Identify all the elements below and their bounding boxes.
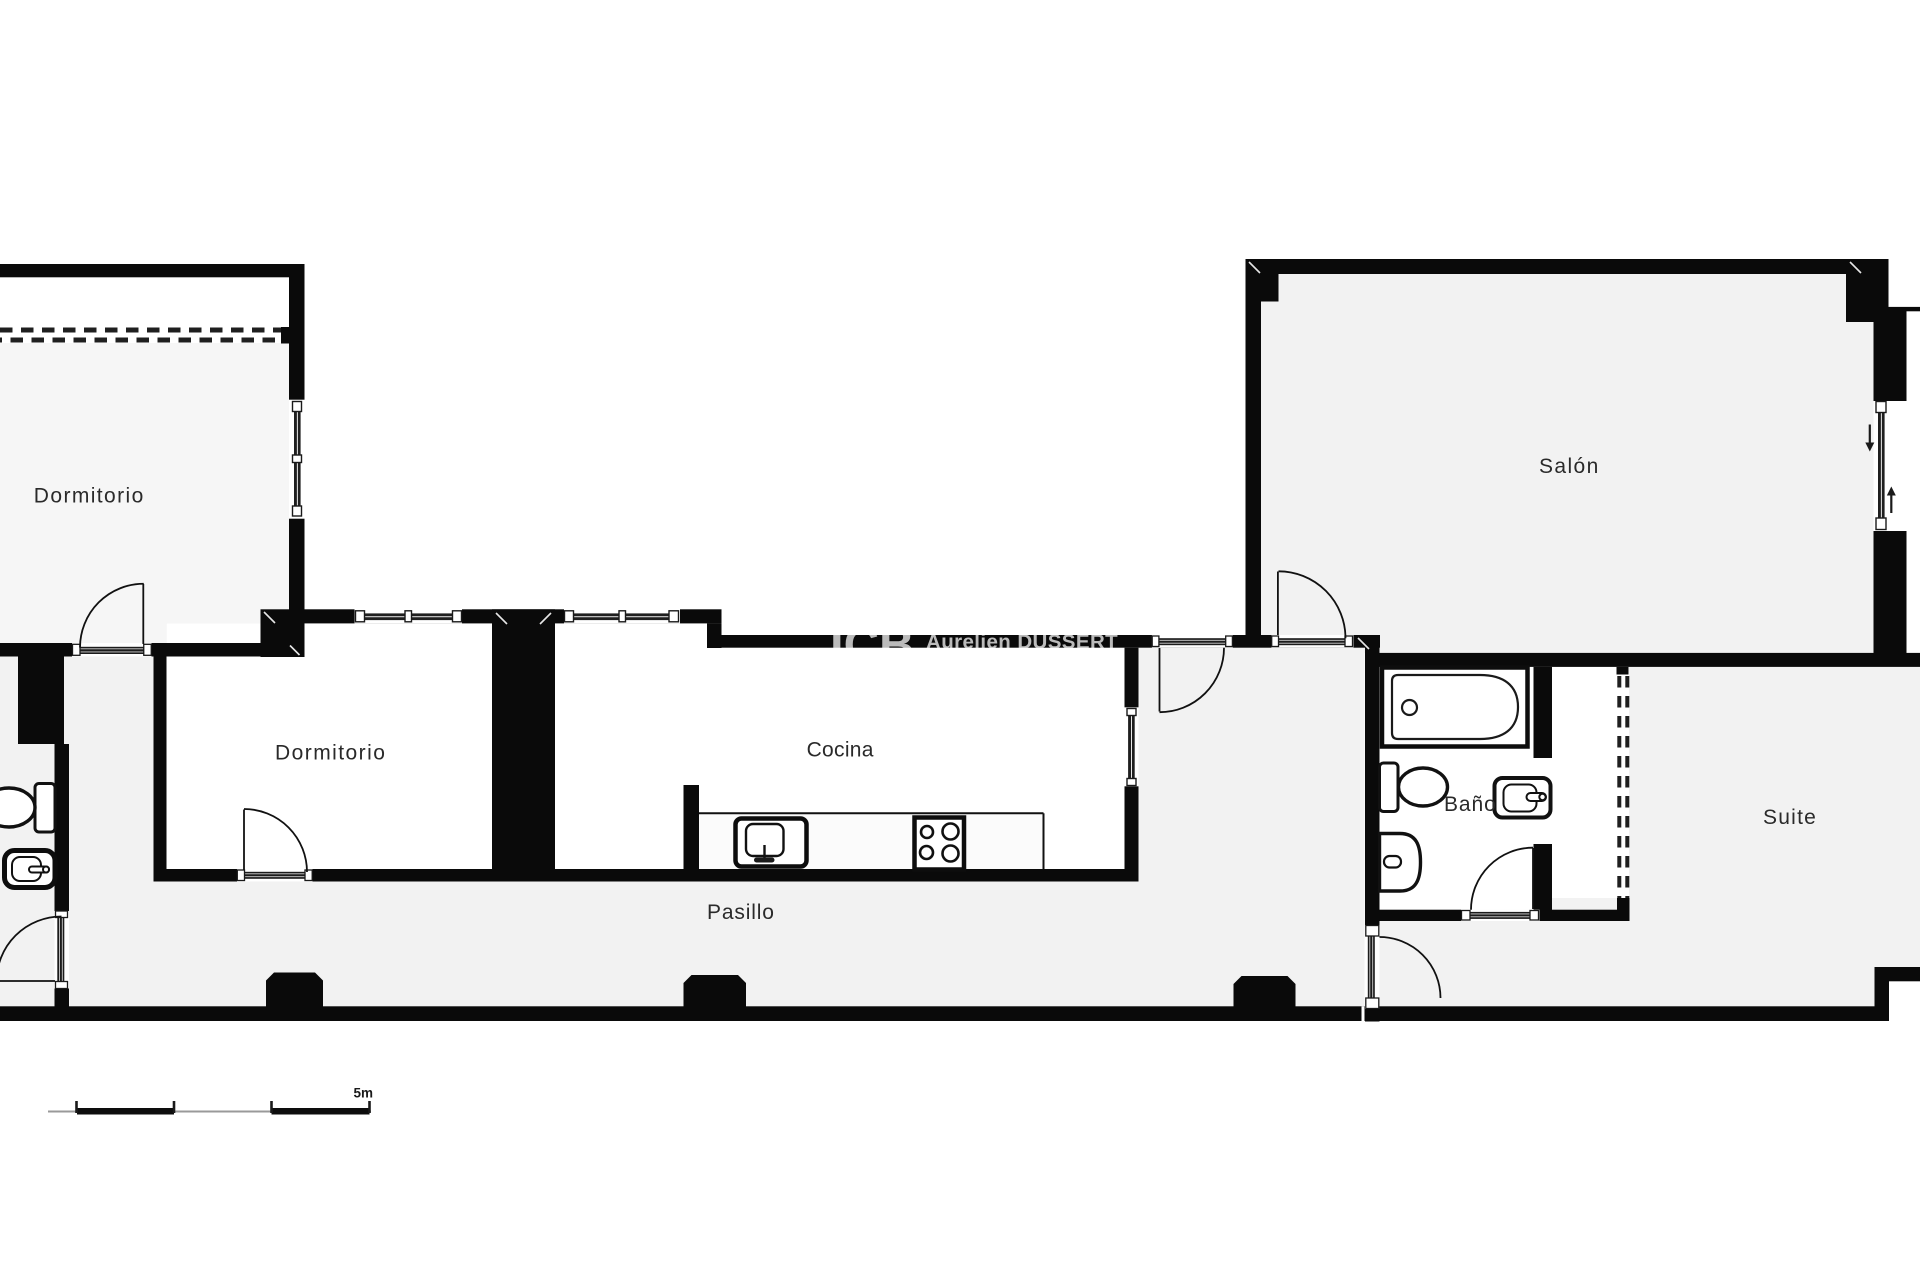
svg-text:Pasillo: Pasillo — [707, 901, 775, 924]
svg-text:Cocina: Cocina — [807, 739, 874, 762]
svg-text:Baño: Baño — [1444, 793, 1497, 816]
svg-text:Salón: Salón — [1539, 455, 1600, 478]
svg-text:5m: 5m — [353, 1086, 373, 1101]
svg-text:Dormitorio: Dormitorio — [275, 742, 386, 765]
svg-text:Suite: Suite — [1763, 806, 1817, 829]
svg-text:ICB: ICB — [830, 619, 914, 673]
svg-text:IMMOBILIER COSTA BLANCA: IMMOBILIER COSTA BLANCA — [927, 650, 1104, 661]
svg-text:Dormitorio: Dormitorio — [34, 485, 145, 508]
